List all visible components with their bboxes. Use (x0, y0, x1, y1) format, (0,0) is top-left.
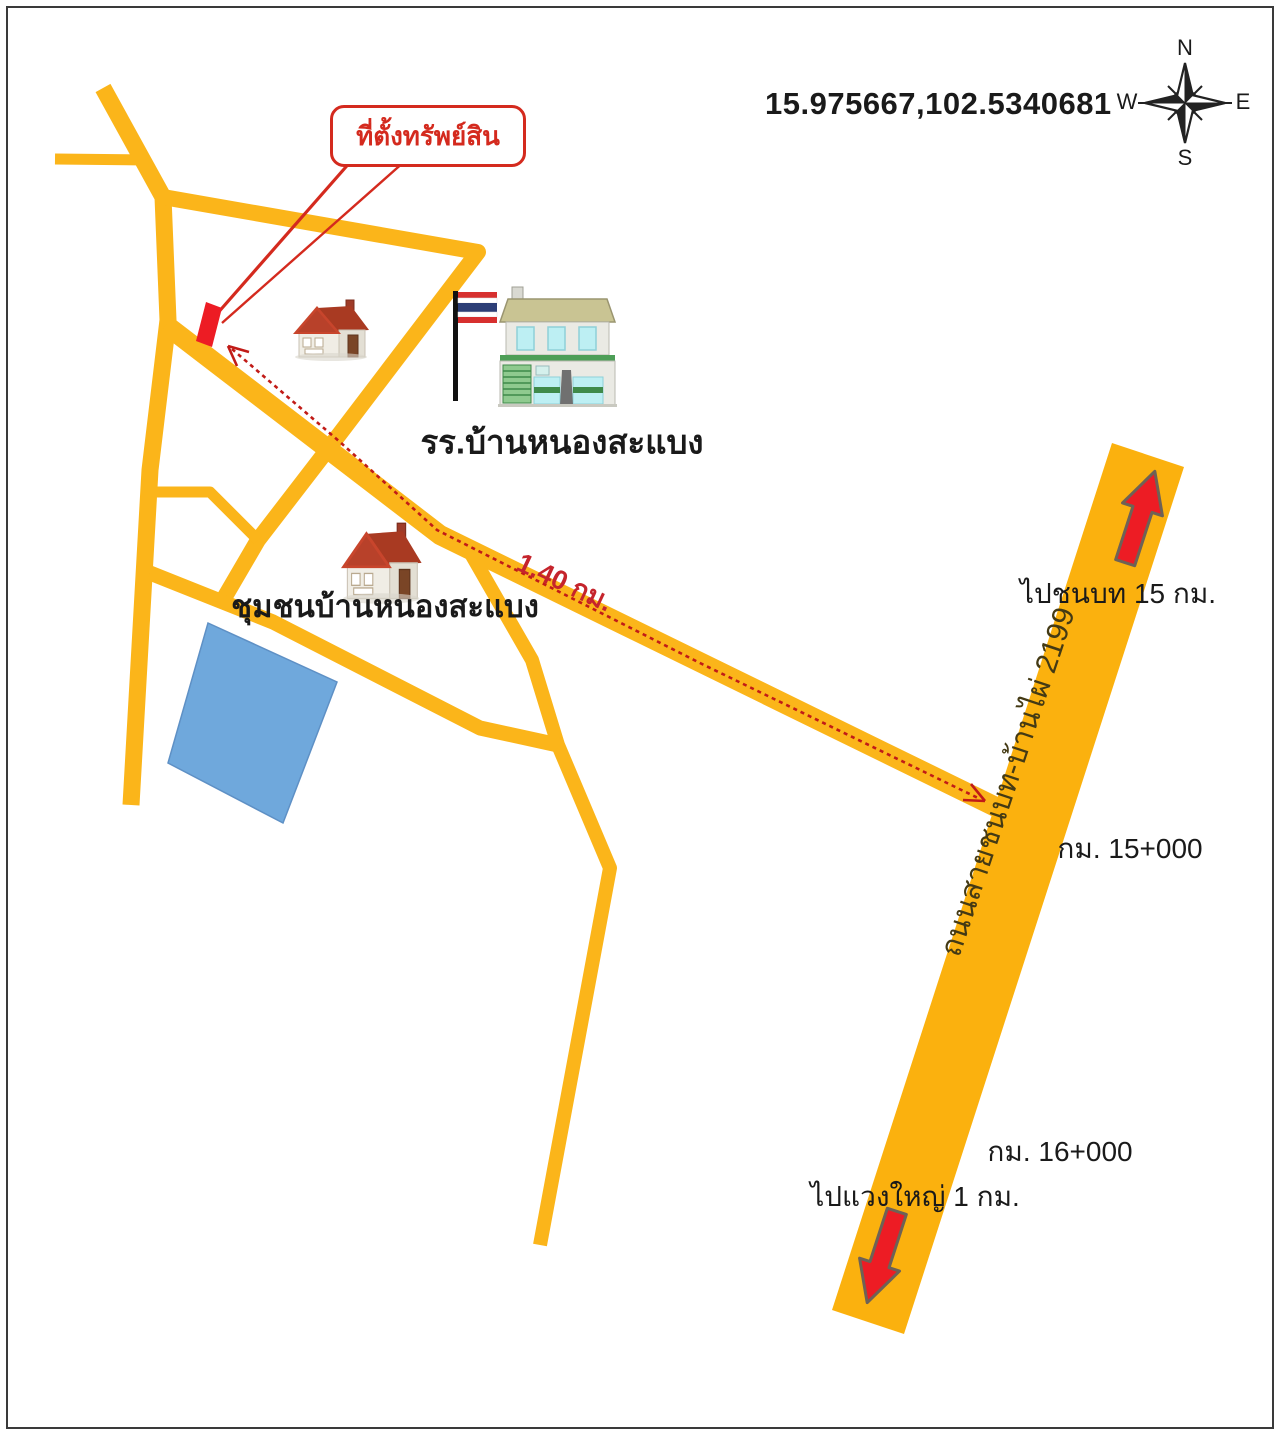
compass-north-label: N (1177, 35, 1193, 61)
coordinates-label: 15.975667,102.5340681 (765, 86, 1112, 122)
property-location-callout: ที่ตั้งทรัพย์สิน (330, 105, 526, 167)
to-waengyai-label: ไปแวงใหญ่ 1 กม. (810, 1175, 1020, 1219)
compass-west-label: W (1117, 89, 1138, 115)
map-frame-border (6, 6, 1274, 1429)
school-label: รร.บ้านหนองสะแบง (420, 416, 703, 469)
map-canvas: 15.975667,102.5340681 ที่ตั้งทรัพย์สิน ร… (0, 0, 1280, 1435)
compass-east-label: E (1236, 89, 1251, 115)
community-label: ชุมชนบ้านหนองสะแบง (231, 581, 539, 631)
property-location-callout-text: ที่ตั้งทรัพย์สิน (356, 116, 500, 157)
km-marker-16-label: กม. 16+000 (987, 1130, 1132, 1174)
compass-south-label: S (1178, 145, 1193, 171)
to-chonnabot-label: ไปชนบท 15 กม. (1020, 572, 1216, 616)
km-marker-15-label: กม. 15+000 (1057, 827, 1202, 871)
